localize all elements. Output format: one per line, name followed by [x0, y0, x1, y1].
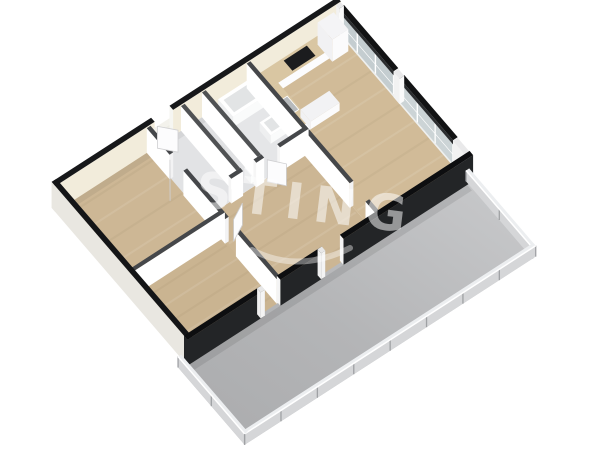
se-wall-b-end — [277, 276, 281, 306]
floorplan-svg: STING — [0, 0, 600, 450]
se-door-jamb-b-end — [318, 249, 322, 279]
se-door-jamb-a-end — [257, 288, 261, 318]
glass-post-face — [400, 76, 405, 104]
entry-door-leaf — [157, 126, 178, 152]
floorplan-3d-render: STING — [0, 0, 600, 450]
se-door-jamb-a-face — [261, 290, 265, 319]
